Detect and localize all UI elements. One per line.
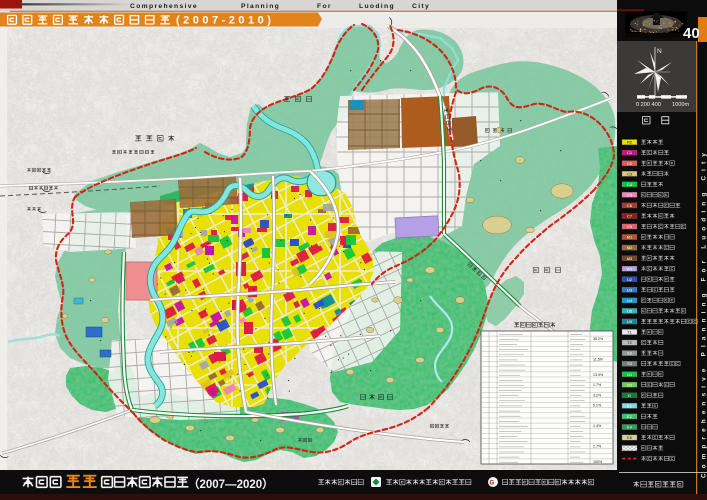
svg-text:Luoding: Luoding (359, 3, 395, 10)
svg-text:C5: C5 (627, 192, 633, 197)
svg-text:E1: E1 (627, 403, 633, 408)
svg-text:C7: C7 (627, 214, 633, 219)
svg-text:T1: T1 (627, 330, 632, 335)
svg-text:40: 40 (683, 25, 700, 42)
svg-text:35.2%: 35.2% (593, 337, 604, 341)
svg-text:M1: M1 (627, 235, 633, 240)
svg-text:C6: C6 (627, 203, 633, 208)
svg-text:G1: G1 (627, 372, 633, 377)
svg-text:11.5%: 11.5% (593, 358, 604, 362)
svg-text:For: For (317, 3, 332, 10)
svg-text:C1: C1 (627, 150, 633, 155)
svg-text:City: City (412, 3, 430, 10)
svg-text:0 200 400: 0 200 400 (636, 102, 661, 108)
svg-text:100%: 100% (593, 460, 603, 464)
svg-text:U5: U5 (627, 309, 633, 314)
svg-text:N: N (657, 48, 662, 55)
svg-text:1.7%: 1.7% (593, 383, 602, 387)
svg-text:S2: S2 (627, 351, 633, 356)
svg-text:2.7%: 2.7% (593, 445, 602, 449)
svg-text:U3: U3 (627, 287, 633, 292)
svg-text:S3: S3 (627, 361, 633, 366)
svg-text:C9: C9 (627, 224, 633, 229)
svg-text:E2: E2 (627, 414, 633, 419)
svg-text:G2: G2 (627, 382, 633, 387)
svg-text:（2007—2020）: （2007—2020） (188, 477, 274, 491)
svg-text:U2: U2 (627, 277, 633, 282)
svg-text:U9: U9 (627, 319, 633, 324)
svg-text:W1: W1 (627, 266, 634, 271)
svg-text:T2: T2 (627, 340, 632, 345)
svg-text:E6: E6 (627, 435, 633, 440)
svg-text:U4: U4 (627, 298, 633, 303)
svg-text:Planning: Planning (241, 3, 280, 10)
svg-text:M2: M2 (627, 245, 633, 250)
svg-text:G: G (490, 481, 495, 487)
svg-text:R2: R2 (627, 140, 633, 145)
svg-text:3.2%: 3.2% (593, 394, 602, 398)
svg-text:C3: C3 (627, 171, 633, 176)
svg-text:D: D (628, 393, 631, 398)
svg-text:13.9%: 13.9% (593, 373, 604, 377)
svg-text:E4: E4 (627, 425, 633, 430)
svg-text:C4: C4 (627, 182, 633, 187)
svg-text:Comprehensive: Comprehensive (130, 3, 198, 10)
svg-text:C2: C2 (627, 161, 633, 166)
svg-text:5.1%: 5.1% (593, 404, 602, 408)
svg-text:1.4%: 1.4% (593, 424, 602, 428)
svg-text:1000m: 1000m (672, 102, 689, 108)
svg-text:(2007-2010): (2007-2010) (176, 15, 274, 27)
svg-text:M3: M3 (627, 256, 633, 261)
